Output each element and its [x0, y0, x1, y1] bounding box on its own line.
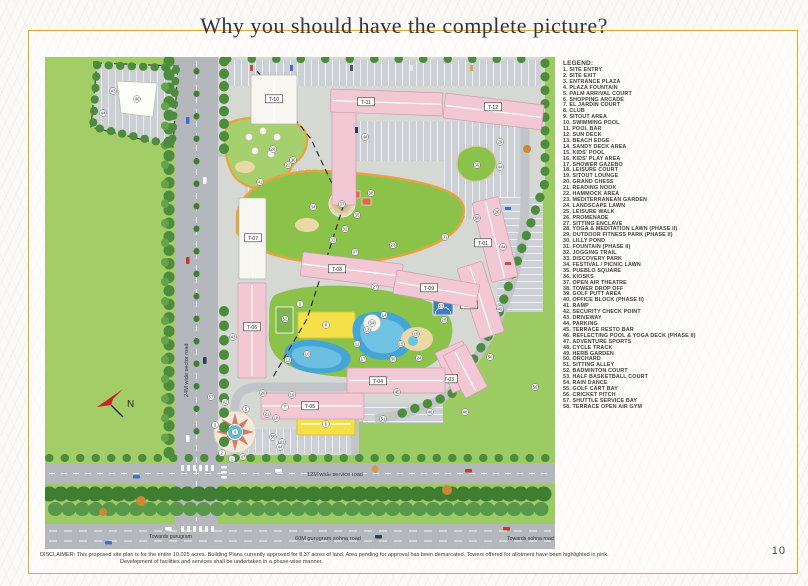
svg-text:20: 20 [261, 391, 266, 396]
svg-text:34: 34 [311, 205, 316, 210]
svg-text:44: 44 [101, 111, 106, 116]
map-marker-9: 9 [297, 301, 304, 308]
svg-text:37: 37 [340, 202, 345, 207]
map-marker-14: 14 [381, 312, 388, 319]
map-marker-52: 52 [282, 316, 289, 323]
map-marker-16: 16 [413, 331, 420, 338]
disclaimer-line1: DISCLAIMER: This proposed site plan is f… [40, 552, 780, 559]
svg-text:56: 56 [533, 385, 538, 390]
map-marker-43: 43 [110, 88, 117, 95]
map-marker-29: 29 [497, 139, 504, 146]
map-marker-37: 37 [339, 201, 346, 208]
map-marker-5: 5 [243, 406, 250, 413]
map-marker-48: 48 [462, 409, 469, 416]
map-marker-34: 34 [310, 204, 317, 211]
map-marker-54: 54 [369, 320, 376, 327]
svg-text:40: 40 [135, 97, 140, 102]
map-marker-24: 24 [416, 355, 423, 362]
svg-text:N: N [127, 399, 134, 410]
sohna-road-label: 60M gurugram sohna road [295, 536, 361, 542]
svg-text:T-03: T-03 [444, 377, 454, 383]
map-marker-44: 44 [362, 134, 369, 141]
map-marker-19: 19 [289, 392, 296, 399]
page-title: Why you should have the complete picture… [0, 13, 808, 39]
svg-text:24: 24 [417, 356, 422, 361]
map-marker-32: 32 [342, 226, 349, 233]
map-marker-1: 1 [229, 456, 236, 463]
map-marker-30: 30 [390, 356, 397, 363]
svg-text:43: 43 [231, 335, 236, 340]
disclaimer-line2: Development of facilities and services s… [120, 559, 780, 566]
svg-text:44: 44 [498, 165, 503, 170]
map-marker-12: 12 [285, 357, 292, 364]
map-marker-43: 43 [230, 334, 237, 341]
svg-text:44: 44 [363, 135, 368, 140]
map-marker-39: 39 [474, 162, 481, 169]
legend-panel: LEGEND: 1. SITE ENTRY2. SITE EXIT3. ENTR… [563, 60, 791, 411]
svg-text:T-10: T-10 [269, 97, 279, 103]
map-marker-13: 13 [364, 327, 371, 334]
svg-text:25: 25 [442, 318, 447, 323]
svg-text:22: 22 [286, 163, 291, 168]
svg-text:23: 23 [391, 243, 396, 248]
map-marker-50: 50 [487, 354, 494, 361]
map-marker-44: 44 [277, 444, 284, 451]
svg-text:36: 36 [291, 158, 296, 163]
svg-text:12: 12 [286, 358, 291, 363]
map-marker-41: 41 [257, 179, 264, 186]
svg-text:52: 52 [283, 317, 288, 322]
svg-text:46: 46 [428, 410, 433, 415]
svg-text:41: 41 [258, 180, 263, 185]
service-road-label: 12M wide service road [307, 472, 363, 478]
svg-text:10: 10 [305, 352, 310, 357]
map-marker-35: 35 [354, 212, 361, 219]
tower-t-06: T-06 [238, 283, 266, 378]
site-plan-map: T-01T-02T-03T-04T-05T-06T-07T-08T-09T-10… [45, 57, 555, 549]
map-marker-2: 2 [219, 450, 226, 457]
map-marker-21: 21 [264, 411, 271, 418]
map-marker-4: 4 [232, 429, 239, 436]
svg-text:14: 14 [382, 313, 387, 318]
svg-text:11: 11 [355, 342, 360, 347]
svg-text:T-08: T-08 [332, 267, 342, 273]
map-marker-3: 3 [212, 422, 219, 429]
site-plan-svg: T-01T-02T-03T-04T-05T-06T-07T-08T-09T-10… [45, 57, 555, 549]
page-number: 10 [772, 545, 786, 557]
svg-text:45: 45 [395, 390, 400, 395]
svg-text:44: 44 [501, 245, 506, 250]
map-marker-15: 15 [398, 341, 405, 348]
svg-text:T-06: T-06 [247, 325, 257, 331]
svg-text:T-07: T-07 [248, 236, 258, 242]
map-marker-49: 49 [497, 306, 504, 313]
map-marker-55: 55 [270, 434, 277, 441]
map-marker-6: 6 [323, 421, 330, 428]
map-marker-57: 57 [208, 394, 215, 401]
map-marker-18: 18 [273, 415, 280, 422]
svg-text:21: 21 [265, 412, 270, 417]
map-marker-28: 28 [270, 146, 277, 153]
svg-text:54: 54 [370, 321, 375, 326]
svg-text:39: 39 [475, 163, 480, 168]
map-marker-31: 31 [442, 234, 449, 241]
svg-text:53: 53 [439, 304, 444, 309]
svg-text:51: 51 [381, 417, 386, 422]
map-marker-7: 7 [282, 404, 289, 411]
map-marker-47: 47 [240, 454, 247, 461]
svg-text:31: 31 [443, 235, 448, 240]
towards-sohna-label: Towards sohna road [507, 536, 554, 542]
map-marker-17: 17 [360, 356, 367, 363]
tower-t-11: T-11 [330, 89, 443, 116]
svg-text:48: 48 [463, 410, 468, 415]
map-marker-27: 27 [372, 284, 379, 291]
svg-text:44: 44 [278, 445, 283, 450]
legend-list: 1. SITE ENTRY2. SITE EXIT3. ENTRANCE PLA… [563, 68, 791, 411]
towards-gurugram-label: Towards gurugram [149, 534, 192, 540]
legend-item: 58. TERRACE OPEN AIR GYM [563, 405, 791, 411]
svg-text:T-01: T-01 [478, 241, 488, 247]
svg-text:T-09: T-09 [424, 286, 434, 292]
map-marker-40: 40 [134, 96, 141, 103]
svg-text:13: 13 [365, 328, 370, 333]
svg-text:47: 47 [241, 455, 246, 460]
svg-text:27: 27 [373, 285, 378, 290]
map-marker-33: 33 [330, 237, 337, 244]
map-marker-20: 20 [260, 390, 267, 397]
map-marker-44: 44 [100, 110, 107, 117]
svg-text:28: 28 [271, 147, 276, 152]
map-marker-10: 10 [304, 351, 311, 358]
svg-text:T-05: T-05 [305, 404, 315, 410]
svg-text:50: 50 [488, 355, 493, 360]
map-marker-51: 51 [380, 416, 387, 423]
svg-text:47: 47 [353, 250, 358, 255]
map-marker-58: 58 [474, 215, 481, 222]
map-marker-22: 22 [285, 162, 292, 169]
sector-road-label: 24M wide sector road [184, 344, 190, 397]
map-marker-44: 44 [497, 164, 504, 171]
svg-text:16: 16 [414, 332, 419, 337]
svg-text:T-04: T-04 [373, 379, 383, 385]
svg-text:T-12: T-12 [488, 105, 498, 111]
svg-text:18: 18 [274, 416, 279, 421]
map-marker-38: 38 [368, 190, 375, 197]
disclaimer: DISCLAIMER: This proposed site plan is f… [40, 552, 780, 566]
svg-text:42: 42 [223, 400, 228, 405]
map-marker-45: 45 [394, 389, 401, 396]
map-marker-26: 26 [494, 209, 501, 216]
map-marker-53: 53 [438, 303, 445, 310]
svg-text:43: 43 [111, 89, 116, 94]
map-marker-44: 44 [500, 244, 507, 251]
svg-text:38: 38 [369, 191, 374, 196]
map-marker-36: 36 [290, 157, 297, 164]
svg-text:30: 30 [391, 357, 396, 362]
svg-text:15: 15 [399, 342, 404, 347]
tower-t-10: T-10 [251, 75, 297, 124]
map-marker-46: 46 [427, 409, 434, 416]
tower-t-07: T-07 [239, 198, 266, 279]
map-marker-25: 25 [441, 317, 448, 324]
svg-text:55: 55 [271, 435, 276, 440]
svg-text:49: 49 [498, 307, 503, 312]
svg-text:19: 19 [290, 393, 295, 398]
map-marker-23: 23 [390, 242, 397, 249]
svg-text:T-11: T-11 [361, 100, 371, 106]
svg-text:32: 32 [343, 227, 348, 232]
map-marker-8: 8 [323, 322, 330, 329]
svg-text:17: 17 [361, 357, 366, 362]
map-marker-47: 47 [352, 249, 359, 256]
map-marker-11: 11 [354, 341, 361, 348]
svg-text:35: 35 [355, 213, 360, 218]
map-marker-42: 42 [222, 399, 229, 406]
svg-text:33: 33 [331, 238, 336, 243]
svg-text:29: 29 [498, 140, 503, 145]
svg-text:26: 26 [495, 210, 500, 215]
map-marker-56: 56 [532, 384, 539, 391]
svg-text:57: 57 [209, 395, 214, 400]
svg-text:58: 58 [475, 216, 480, 221]
